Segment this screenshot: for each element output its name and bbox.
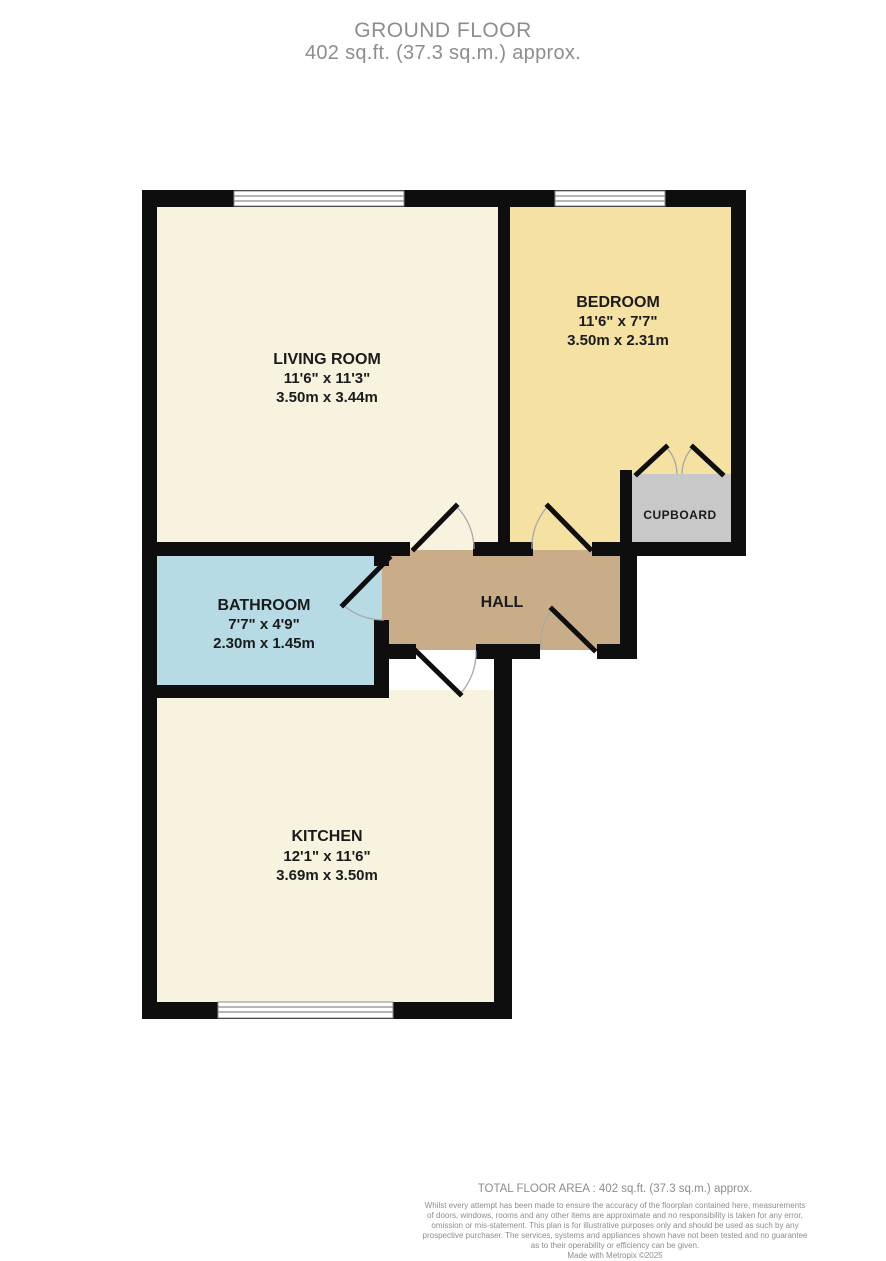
wall-bathroom-bottom — [142, 685, 389, 698]
wall-bedroom-right — [731, 190, 746, 556]
bedroom-label: BEDROOM — [576, 294, 660, 311]
kitchen-label: KITCHEN — [291, 828, 362, 845]
bedroom-dims-metric: 3.50m x 2.31m — [567, 332, 669, 349]
plan-footer: TOTAL FLOOR AREA : 402 sq.ft. (37.3 sq.m… — [345, 1182, 885, 1261]
wall-mid-horizontal-right — [592, 542, 746, 556]
disclaimer-line: as to their operability or efficiency ca… — [345, 1241, 885, 1251]
bedroom-dims-imperial: 11'6" x 7'7" — [579, 313, 658, 330]
disclaimer-line: omission or mis-statement. This plan is … — [345, 1221, 885, 1231]
floorplan-page: GROUND FLOOR 402 sq.ft. (37.3 sq.m.) app… — [0, 0, 886, 1261]
wall-left — [142, 190, 157, 1019]
wall-hall-bottom-left — [374, 644, 416, 659]
bathroom-label: BATHROOM — [217, 597, 310, 614]
bedroom-window-icon — [555, 191, 665, 206]
bathroom-dims-imperial: 7'7" x 4'9" — [228, 616, 299, 633]
wall-cupboard-left — [620, 470, 632, 542]
kitchen-dims-metric: 3.69m x 3.50m — [276, 867, 378, 884]
floorplan-drawing: LIVING ROOM 11'6" x 11'3" 3.50m x 3.44m … — [0, 0, 886, 1261]
cupboard-label: CUPBOARD — [643, 508, 716, 522]
disclaimer-line: of doors, windows, rooms and any other i… — [345, 1211, 885, 1221]
wall-kitchen-right — [494, 644, 512, 1019]
made-with-credit: Made with Metropix ©2025 — [345, 1251, 885, 1261]
kitchen-door-icon — [416, 651, 476, 694]
kitchen-dims-imperial: 12'1" x 11'6" — [283, 848, 370, 865]
living-room-window-icon — [234, 191, 404, 206]
bathroom-dims-metric: 2.30m x 1.45m — [213, 635, 315, 652]
living-room-dims-imperial: 11'6" x 11'3" — [284, 370, 370, 387]
wall-living-bedroom-divider — [498, 205, 510, 556]
wall-mid-horizontal-center — [473, 542, 533, 556]
wall-hall-right — [620, 542, 637, 659]
wall-mid-horizontal-left — [142, 542, 410, 556]
living-room-dims-metric: 3.50m x 3.44m — [276, 389, 378, 406]
disclaimer-line: prospective purchaser. The services, sys… — [345, 1231, 885, 1241]
living-room-label: LIVING ROOM — [273, 351, 381, 368]
total-floor-area: TOTAL FLOOR AREA : 402 sq.ft. (37.3 sq.m… — [345, 1182, 885, 1196]
hall-label: HALL — [481, 594, 524, 611]
disclaimer-line: Whilst every attempt has been made to en… — [345, 1201, 885, 1211]
kitchen-window-icon — [218, 1002, 393, 1018]
